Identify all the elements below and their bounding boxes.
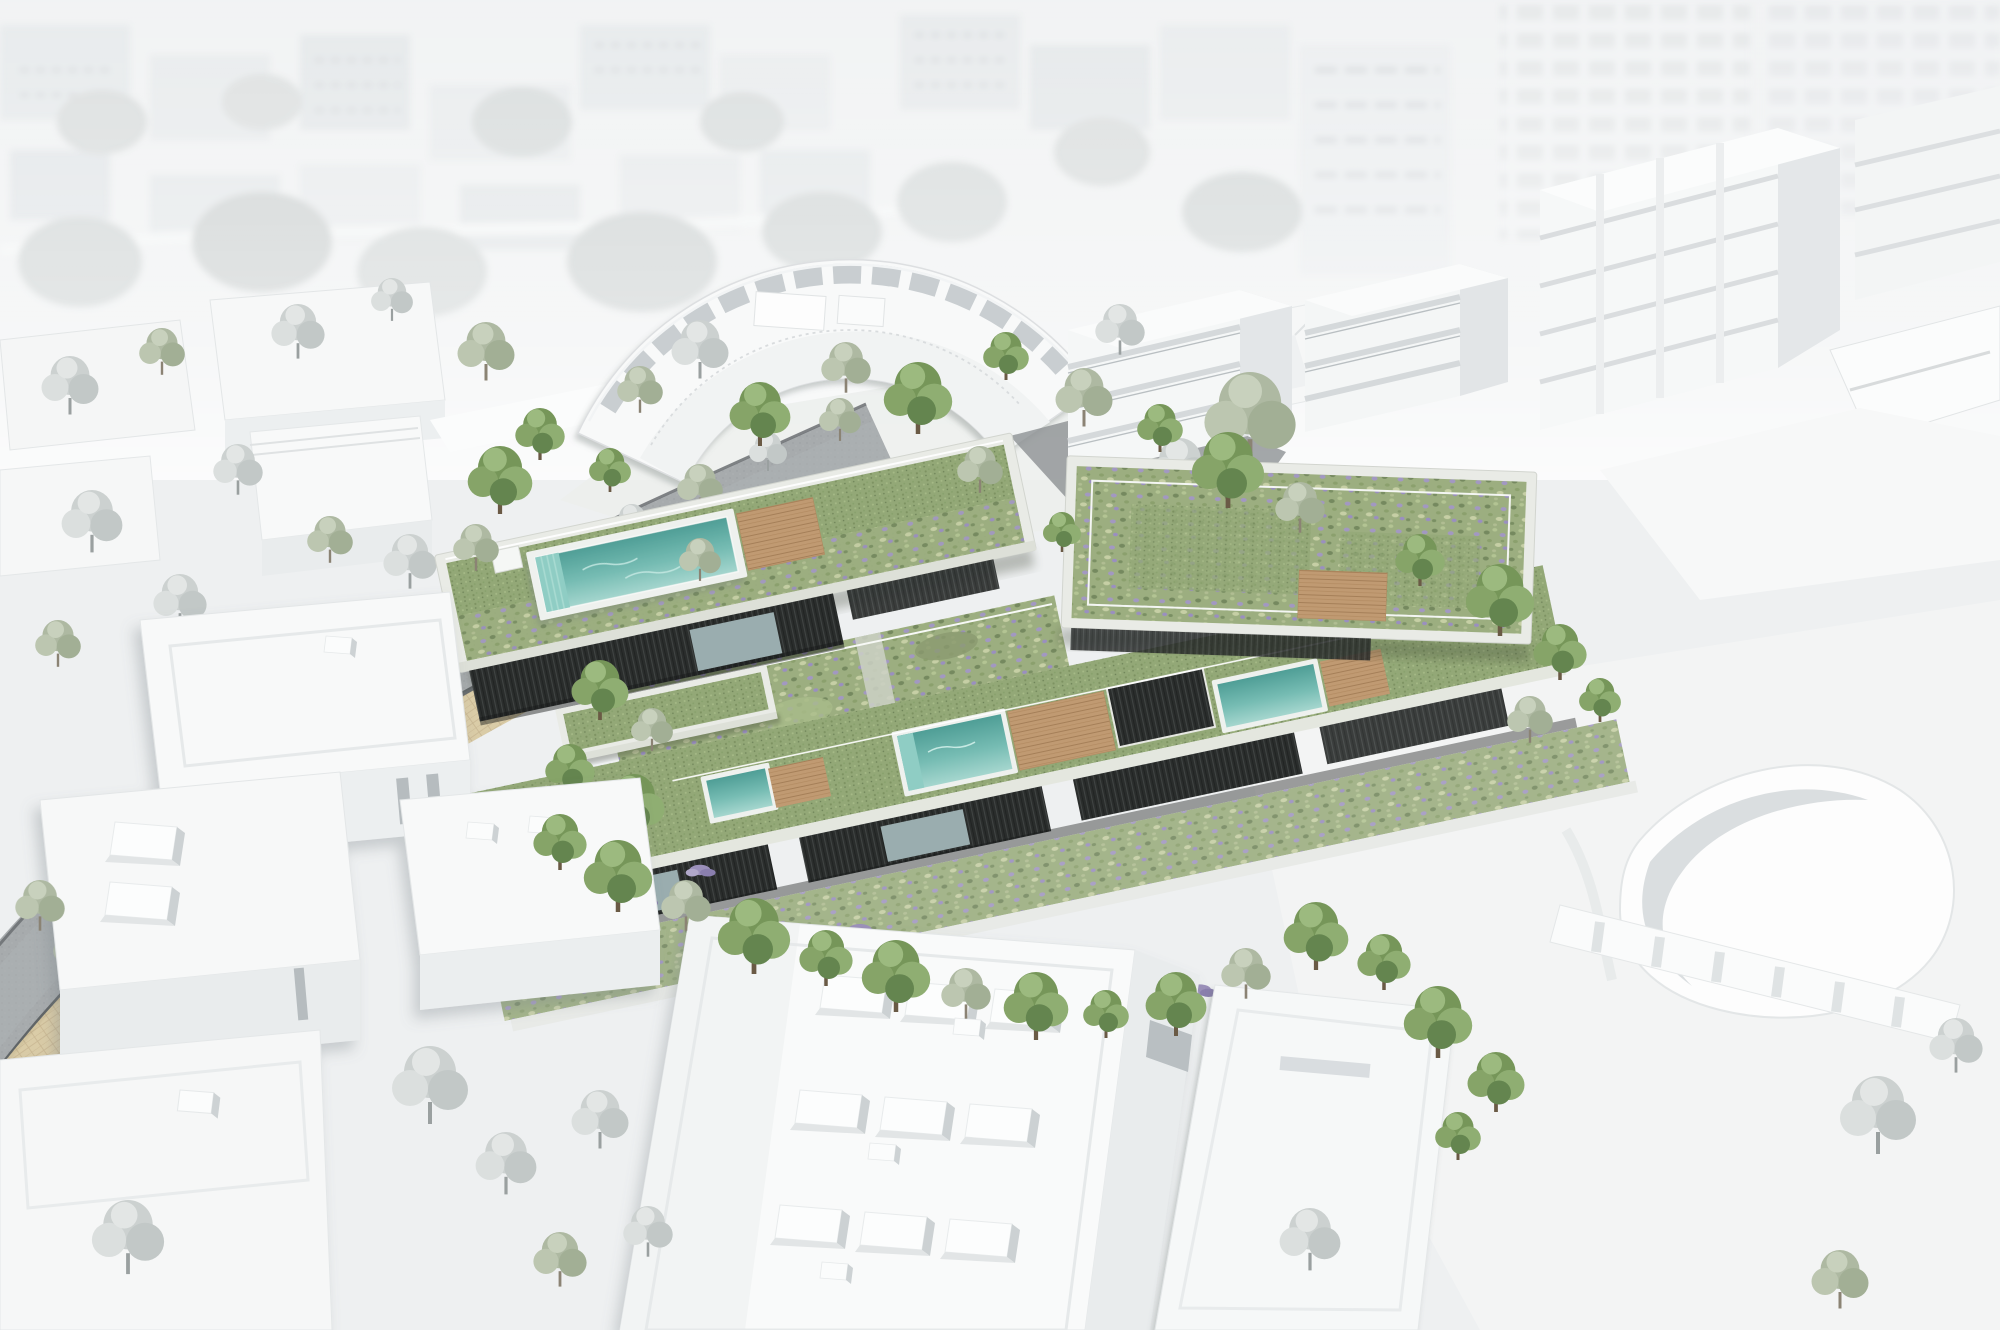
slab-side-face [1778, 128, 1840, 368]
white-house-2 [40, 772, 360, 1070]
wood-deck [1298, 570, 1388, 621]
render-canvas [0, 0, 2000, 1330]
white-house-3 [0, 1030, 332, 1330]
aerial-render-stage [0, 0, 2000, 1330]
